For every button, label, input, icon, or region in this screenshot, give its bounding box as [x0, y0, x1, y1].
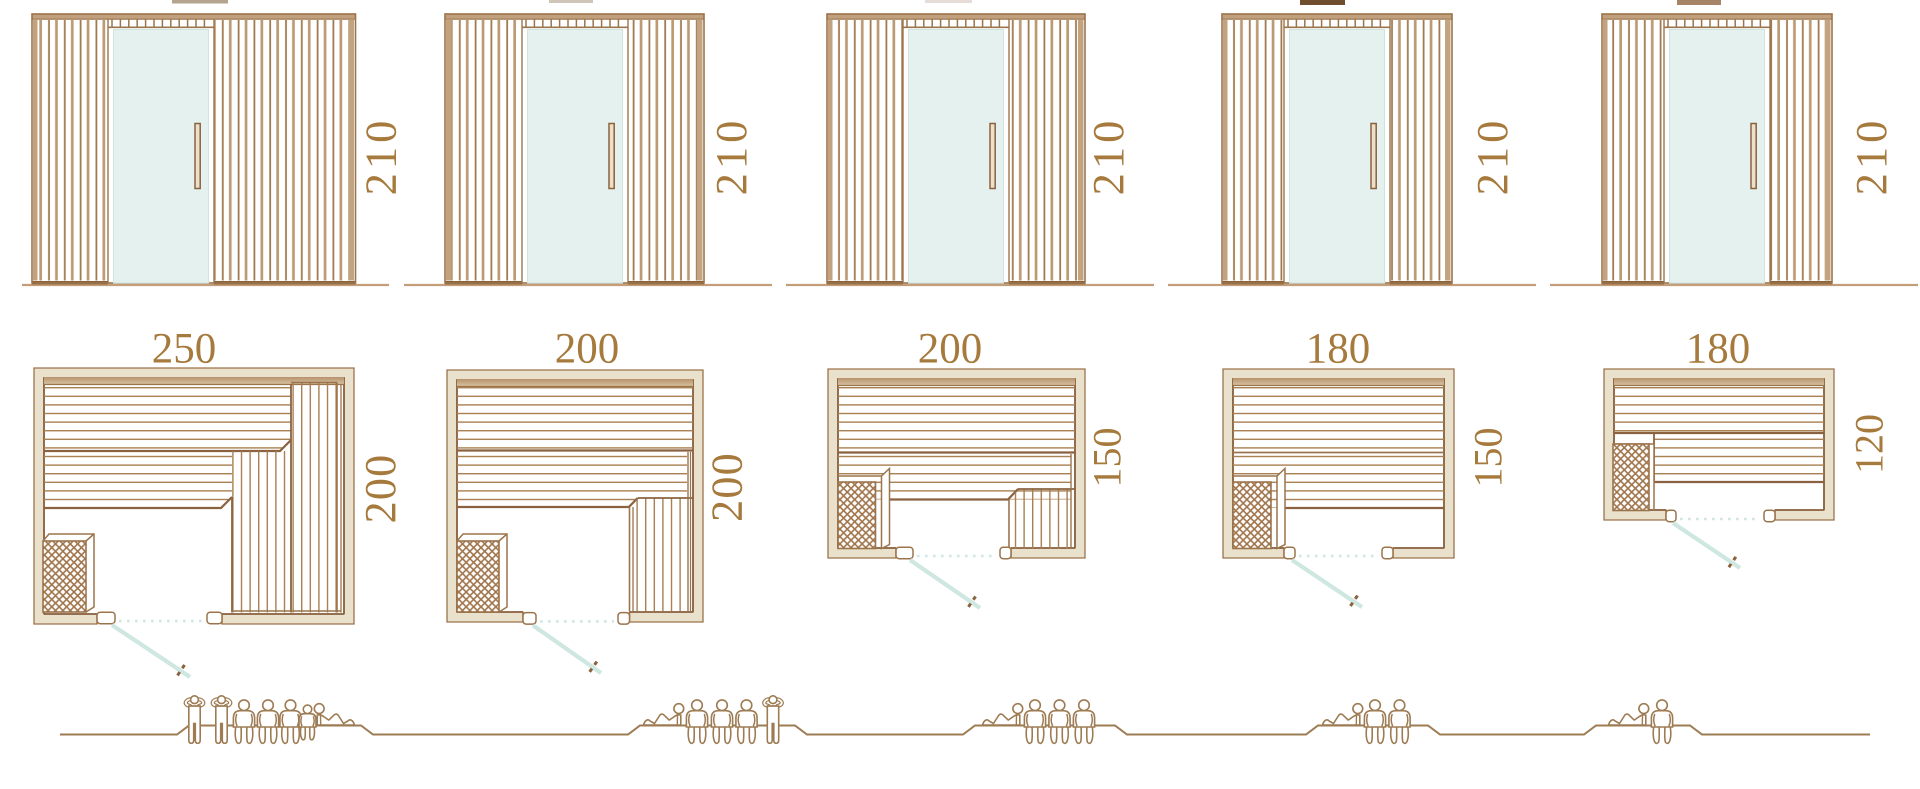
svg-text:250: 250: [152, 326, 217, 373]
svg-text:210: 210: [1467, 117, 1517, 196]
svg-text:180: 180: [1686, 326, 1751, 373]
svg-text:200: 200: [918, 326, 983, 373]
svg-text:210: 210: [1846, 117, 1896, 196]
svg-text:150: 150: [1085, 428, 1130, 488]
svg-text:120: 120: [1847, 414, 1892, 474]
svg-text:210: 210: [706, 117, 756, 196]
svg-text:200: 200: [703, 452, 752, 522]
svg-text:210: 210: [356, 117, 406, 196]
svg-text:150: 150: [1466, 428, 1511, 488]
svg-text:210: 210: [1083, 117, 1133, 196]
svg-text:200: 200: [356, 454, 405, 524]
svg-text:180: 180: [1306, 326, 1371, 373]
svg-text:200: 200: [555, 326, 620, 373]
